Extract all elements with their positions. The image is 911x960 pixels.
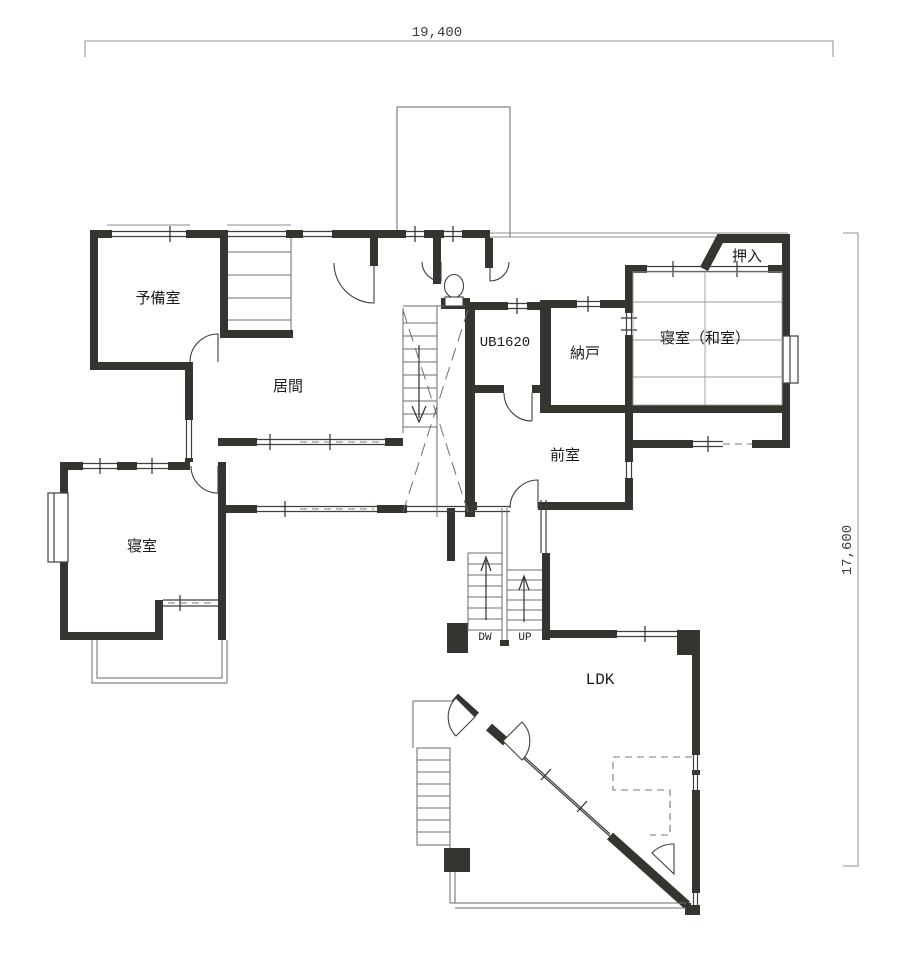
room-label-bedroom: 寝室 [127, 537, 157, 555]
room-label-spare: 予備室 [135, 289, 180, 307]
deck-door [448, 698, 475, 736]
upper-shelf-stairs [228, 238, 291, 330]
bedroom-door [191, 466, 218, 493]
room-label-storage: 納戸 [570, 344, 600, 362]
room-label-living: 居間 [273, 377, 303, 395]
windows [48, 226, 798, 905]
dw-up-stairs [468, 508, 542, 646]
room-label-ldk: LDK [586, 671, 615, 689]
dimension-top-label: 19,400 [412, 25, 462, 41]
unit-bath-door [504, 393, 532, 421]
dimension-right: 17,600 [840, 233, 858, 866]
roof-outline [397, 107, 510, 237]
stair-label-up: UP [518, 632, 532, 644]
spare-room-door [190, 334, 218, 362]
toilet-icon [445, 275, 464, 307]
void-x [403, 310, 468, 512]
dimension-right-label: 17,600 [840, 525, 856, 575]
ldk-corner-door [503, 722, 530, 760]
ldk-terrace-door [652, 844, 674, 874]
room-label-anteroom: 前室 [550, 446, 580, 464]
exterior-deck-stairs [417, 748, 450, 845]
room-label-unit-bath: UB1620 [480, 335, 530, 351]
doors [190, 262, 674, 874]
living-room-door [334, 263, 374, 303]
anteroom-door [510, 480, 538, 508]
room-label-closet: 押入 [732, 247, 762, 265]
kitchen-counter-outline [613, 757, 692, 835]
bedroom-balcony-outline [92, 640, 227, 683]
floor-plan-page: 19,400 17,600 [0, 0, 911, 960]
room-label-bedroom-washitsu: 寝室（和室） [660, 329, 750, 347]
stair-label-down: DW [478, 632, 492, 644]
deck-post [444, 848, 470, 872]
dimension-top: 19,400 [85, 25, 833, 57]
diagonal-window-wall [518, 751, 614, 840]
floor-plan-drawing: 19,400 17,600 [0, 0, 911, 960]
